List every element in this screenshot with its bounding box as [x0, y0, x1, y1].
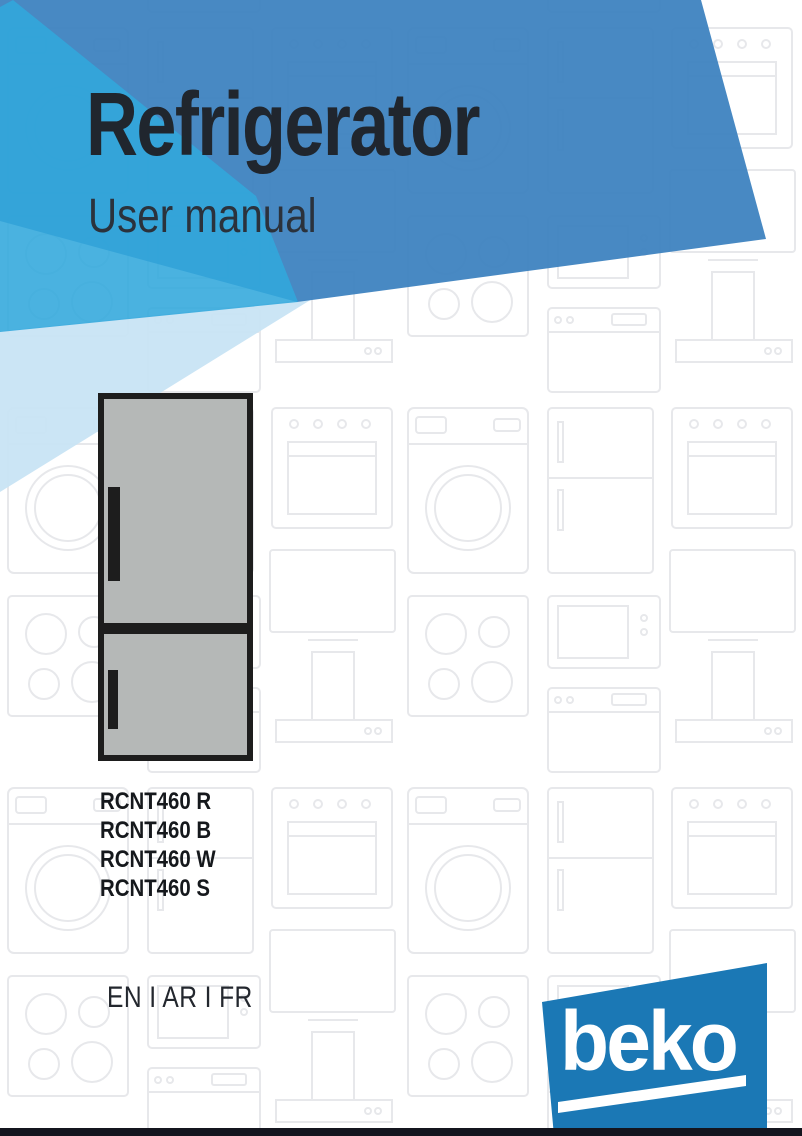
page-title: Refrigerator — [86, 78, 479, 173]
beko-logo: beko — [530, 950, 802, 1136]
refrigerator-illustration — [98, 393, 253, 761]
fridge-lower-handle-icon — [108, 670, 118, 729]
model-list-item: RCNT460 R — [100, 787, 216, 816]
fridge-upper-door — [104, 399, 247, 623]
model-list-item: RCNT460 S — [100, 874, 216, 903]
footer-bar — [0, 1128, 802, 1136]
beko-logo-wordmark: beko — [560, 994, 737, 1088]
fridge-upper-handle-icon — [108, 487, 120, 581]
page-subtitle: User manual — [88, 191, 317, 244]
model-list-item: RCNT460 W — [100, 845, 216, 874]
language-codes: EN I AR I FR — [107, 981, 253, 1015]
freezer-lower-door — [104, 634, 247, 755]
manual-cover-page: Refrigerator User manual RCNT460 R RCNT4… — [0, 0, 802, 1136]
model-list: RCNT460 R RCNT460 B RCNT460 W RCNT460 S — [100, 787, 216, 903]
model-list-item: RCNT460 B — [100, 816, 216, 845]
